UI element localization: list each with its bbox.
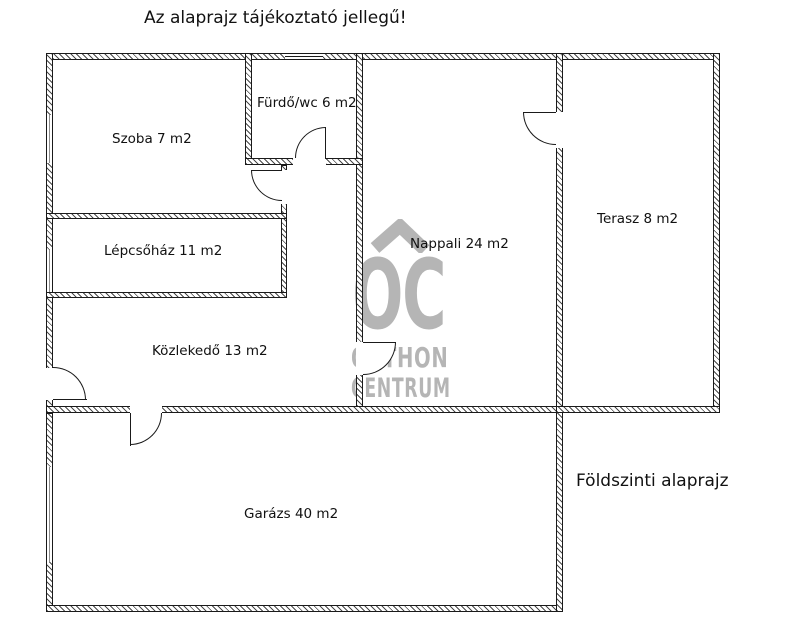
wall-terasz-bottom xyxy=(556,406,720,413)
entry-door-arc xyxy=(53,367,86,400)
wall-lepcsohaz-bottom xyxy=(46,292,287,298)
window-szoba-left xyxy=(46,115,53,163)
floor-name-label: Földszinti alaprajz xyxy=(576,471,729,491)
floor-plan-canvas: OC OTTHON CENTRUM Az alaprajz tájékoztat… xyxy=(0,0,800,625)
window-lepcsohaz-left xyxy=(46,250,53,292)
terasz-door-arc xyxy=(523,112,556,145)
szoba-door-panel xyxy=(251,170,282,171)
opening-entry-door xyxy=(46,368,53,400)
terasz-door-panel xyxy=(523,112,556,113)
garage-door-panel xyxy=(130,413,131,446)
watermark-monogram: OC xyxy=(352,247,445,343)
opening-terasz-door xyxy=(556,112,563,148)
disclaimer-title: Az alaprajz tájékoztató jellegű! xyxy=(144,8,407,28)
room-label-furdo: Fürdő/wc 6 m2 xyxy=(257,95,357,111)
entry-door-panel xyxy=(53,399,87,400)
furdo-door-arc xyxy=(295,127,326,158)
nappali-door-panel xyxy=(363,342,396,343)
garage-door-arc xyxy=(130,413,162,445)
opening-garage-door xyxy=(130,406,162,413)
room-label-kozlekedo: Közlekedő 13 m2 xyxy=(152,343,268,359)
furdo-door-panel xyxy=(325,127,326,159)
window-furdo-top xyxy=(285,53,323,60)
room-label-terasz: Terasz 8 m2 xyxy=(597,211,678,227)
room-label-lepcsohaz: Lépcsőház 11 m2 xyxy=(104,243,222,259)
wall-exterior-top xyxy=(46,53,720,60)
szoba-door-arc xyxy=(251,170,282,201)
wall-furdo-left xyxy=(245,53,252,165)
opening-furdo-door xyxy=(293,158,326,165)
wall-garage-top xyxy=(46,406,563,413)
opening-nappali-door xyxy=(356,342,363,375)
wall-lepcsohaz-top xyxy=(46,213,287,219)
room-label-nappali: Nappali 24 m2 xyxy=(410,236,509,252)
room-label-garazs: Garázs 40 m2 xyxy=(244,506,338,522)
room-label-szoba: Szoba 7 m2 xyxy=(112,131,192,147)
watermark-line2: CENTRUM xyxy=(351,375,451,402)
wall-exterior-right xyxy=(713,53,720,413)
window-garage-left xyxy=(46,467,53,562)
wall-exterior-bottom-garage xyxy=(46,605,563,612)
wall-exterior-left-upper xyxy=(46,53,53,413)
